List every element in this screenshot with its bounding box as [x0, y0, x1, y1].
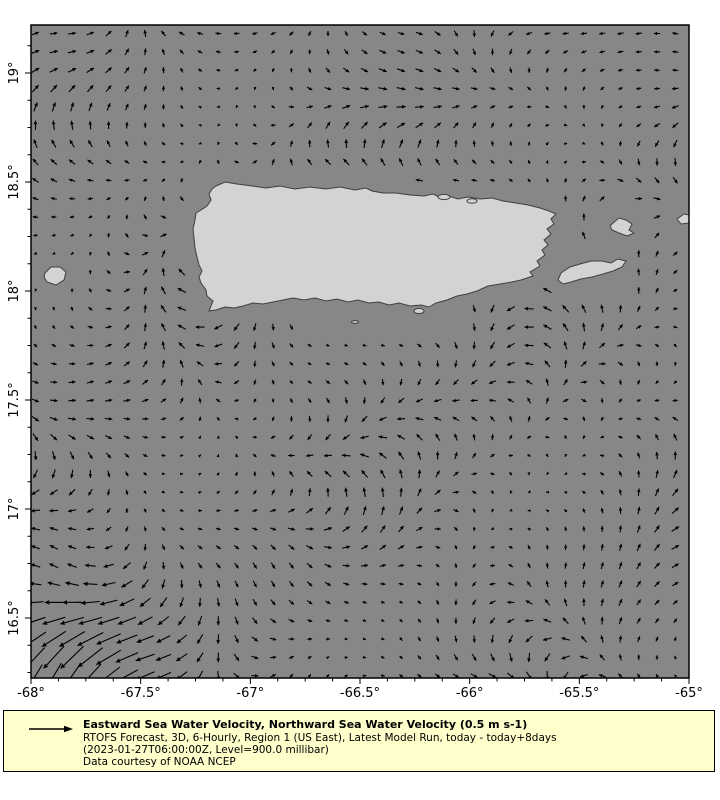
y-tick-label: 18.5° — [7, 164, 22, 199]
velocity-map: -68°-67.5°-67°-66.5°-66°-65.5°-65° 19°18… — [0, 0, 720, 706]
y-tick-label: 18° — [7, 279, 22, 302]
legend-title: Eastward Sea Water Velocity, Northward S… — [83, 719, 557, 732]
x-tick-label: -67.5° — [121, 686, 161, 701]
sea-water-velocity-figure: -68°-67.5°-67°-66.5°-66°-65.5°-65° 19°18… — [0, 0, 720, 800]
islet — [414, 308, 424, 313]
y-tick-label: 16.5° — [7, 600, 22, 635]
sea-background — [31, 25, 689, 678]
y-tick-label: 19° — [7, 61, 22, 84]
legend-run-info: (2023-01-27T06:00:00Z, Level=900.0 milli… — [83, 744, 557, 756]
islet — [467, 199, 477, 203]
x-tick-label: -65° — [675, 686, 703, 701]
legend-subtitle: RTOFS Forecast, 3D, 6-Hourly, Region 1 (… — [83, 732, 557, 744]
y-axis-labels: 19°18.5°18°17.5°17°16.5° — [7, 61, 22, 635]
x-tick-label: -68° — [17, 686, 45, 701]
x-tick-label: -66.5° — [340, 686, 380, 701]
y-tick-label: 17° — [7, 497, 22, 520]
legend-box: Eastward Sea Water Velocity, Northward S… — [3, 710, 715, 772]
y-tick-label: 17.5° — [7, 382, 22, 417]
reference-arrow-icon — [28, 723, 74, 735]
islet — [352, 321, 359, 324]
islet — [438, 194, 450, 199]
x-tick-label: -67° — [236, 686, 264, 701]
x-tick-label: -65.5° — [559, 686, 599, 701]
x-tick-label: -66° — [456, 686, 484, 701]
x-axis-labels: -68°-67.5°-67°-66.5°-66°-65.5°-65° — [17, 686, 703, 701]
legend-credit: Data courtesy of NOAA NCEP — [83, 756, 557, 768]
